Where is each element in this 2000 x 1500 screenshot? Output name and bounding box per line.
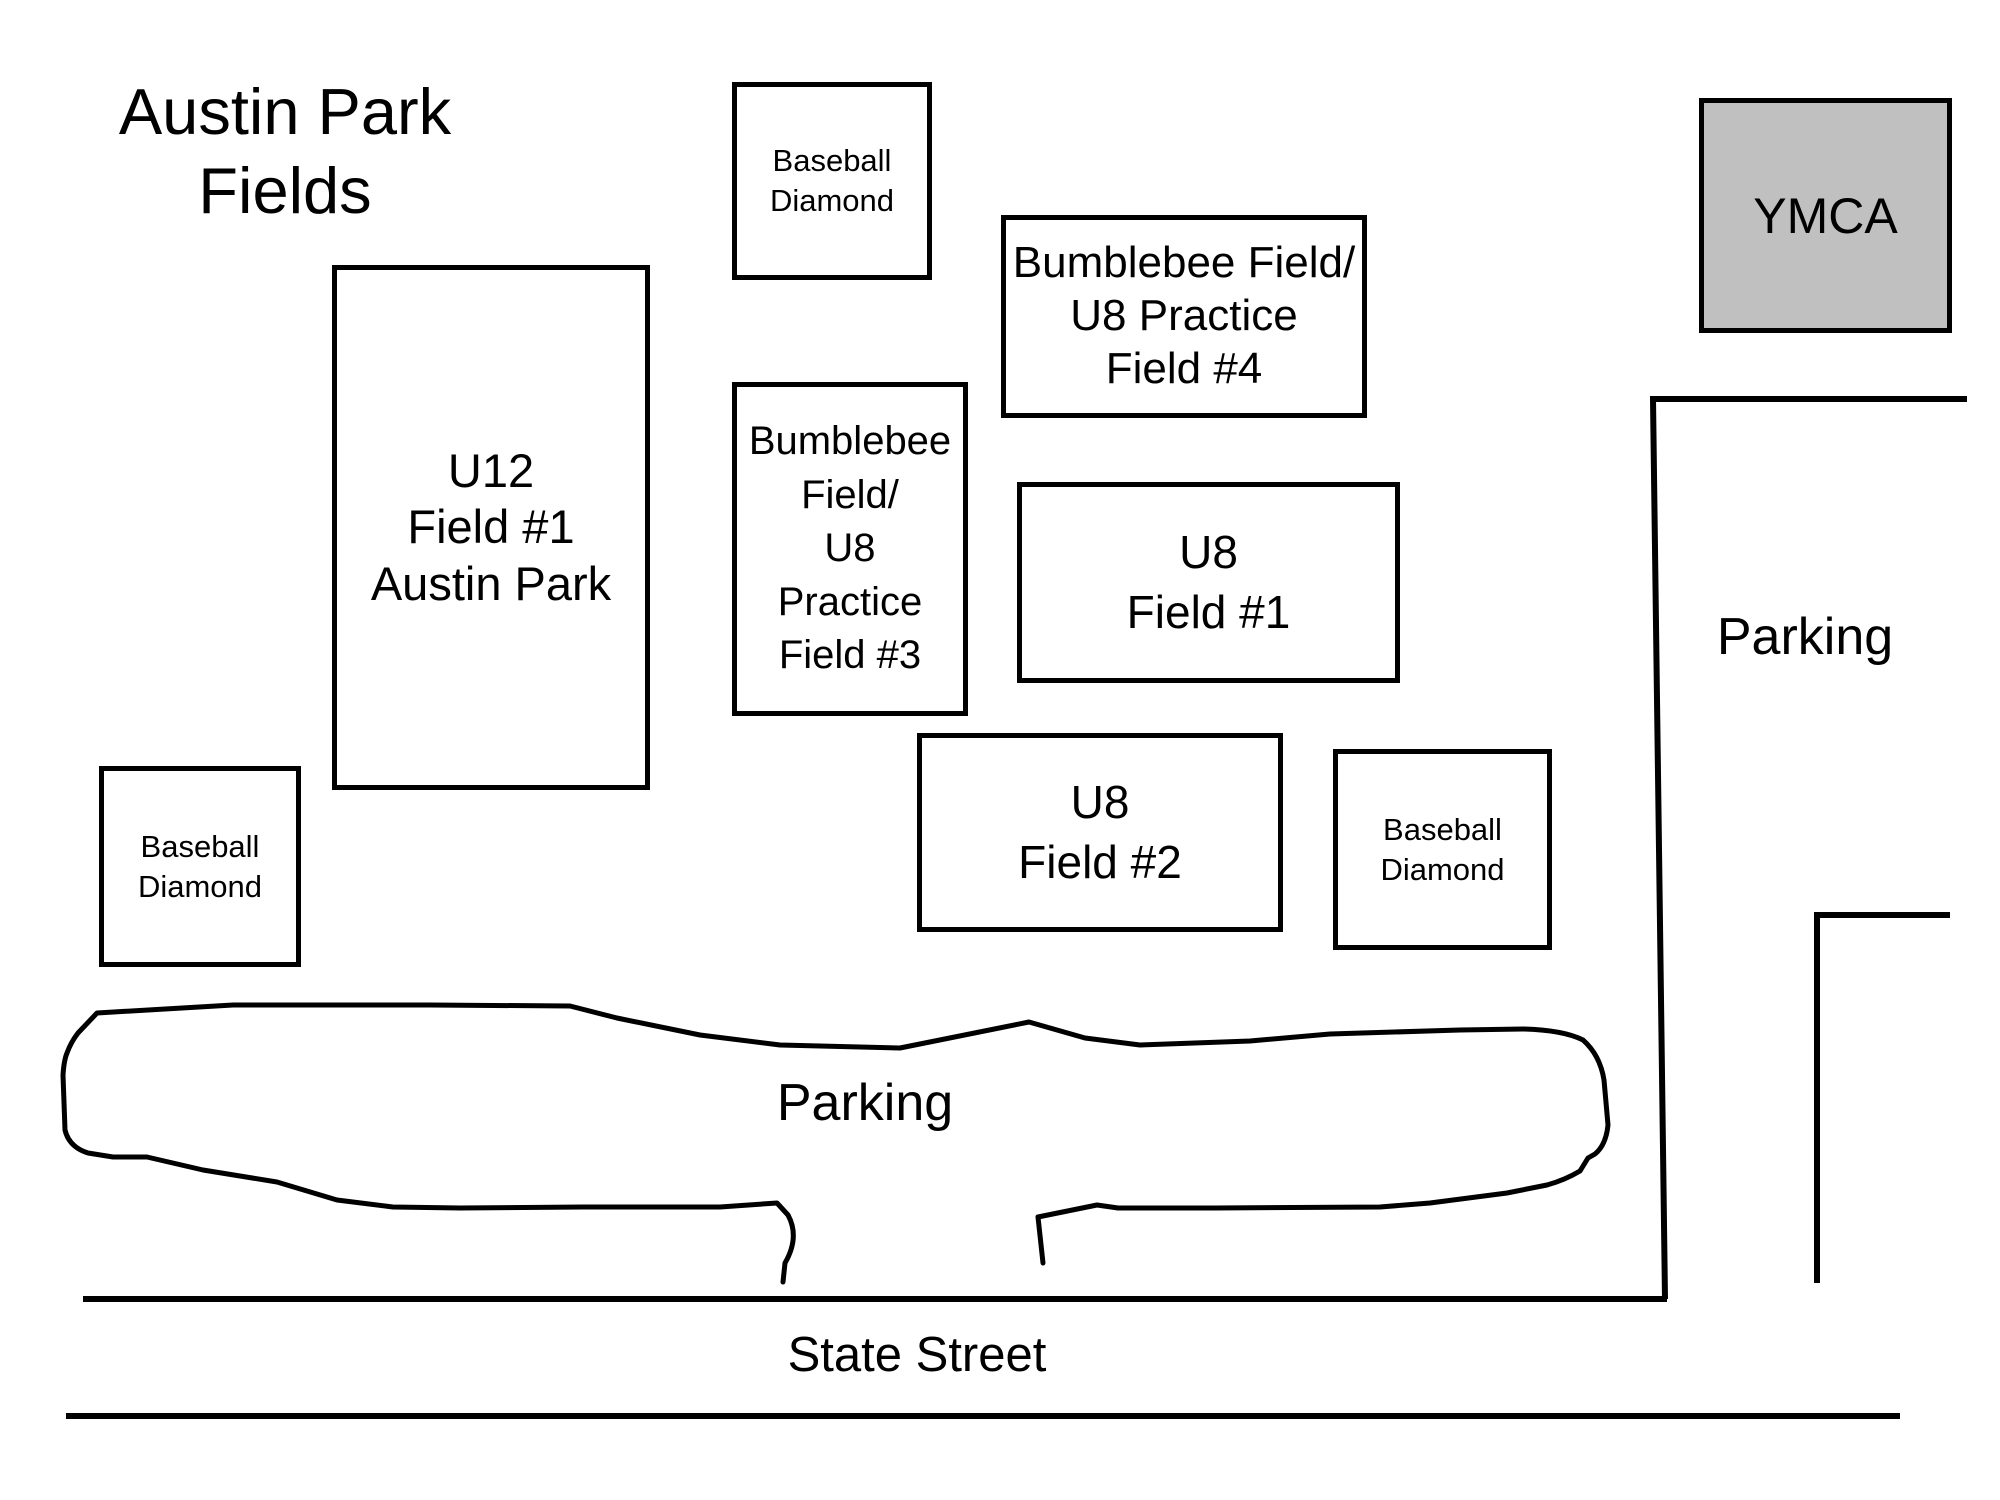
u12-field1-austin-park-label: U12 Field #1 Austin Park: [371, 443, 611, 612]
baseball-diamond-west-label: Baseball Diamond: [138, 827, 262, 906]
southeast-boundary-line: [1817, 915, 1950, 1283]
u12-field1-austin-park-box: U12 Field #1 Austin Park: [332, 265, 650, 790]
baseball-diamond-north-box: Baseball Diamond: [732, 82, 932, 280]
baseball-diamond-east-box: Baseball Diamond: [1333, 749, 1552, 950]
ymca-building-box: YMCA: [1699, 98, 1952, 333]
u8-field2-label: U8 Field #2: [1018, 773, 1182, 893]
bumblebee-u8-practice-field3-box: Bumblebee Field/ U8 Practice Field #3: [732, 382, 968, 716]
u8-field1-box: U8 Field #1: [1017, 482, 1400, 683]
bumblebee-u8-practice-field3-label: Bumblebee Field/ U8 Practice Field #3: [749, 415, 951, 683]
parking-lot-outline: [63, 1005, 1608, 1282]
u8-field1-label: U8 Field #1: [1127, 523, 1291, 643]
east-parking-boundary-line: [1653, 399, 1967, 1299]
baseball-diamond-west-box: Baseball Diamond: [99, 766, 301, 967]
map-title: Austin Park Fields: [90, 72, 480, 231]
parking-east-label: Parking: [1655, 604, 1955, 670]
baseball-diamond-east-label: Baseball Diamond: [1380, 810, 1504, 889]
parking-main-label: Parking: [665, 1070, 1065, 1136]
bumblebee-u8-practice-field4-label: Bumblebee Field/ U8 Practice Field #4: [1013, 237, 1355, 395]
u8-field2-box: U8 Field #2: [917, 733, 1283, 932]
bumblebee-u8-practice-field4-box: Bumblebee Field/ U8 Practice Field #4: [1001, 215, 1367, 418]
ymca-label: YMCA: [1753, 184, 1897, 248]
state-street-label: State Street: [717, 1324, 1117, 1386]
baseball-diamond-north-label: Baseball Diamond: [770, 141, 894, 220]
